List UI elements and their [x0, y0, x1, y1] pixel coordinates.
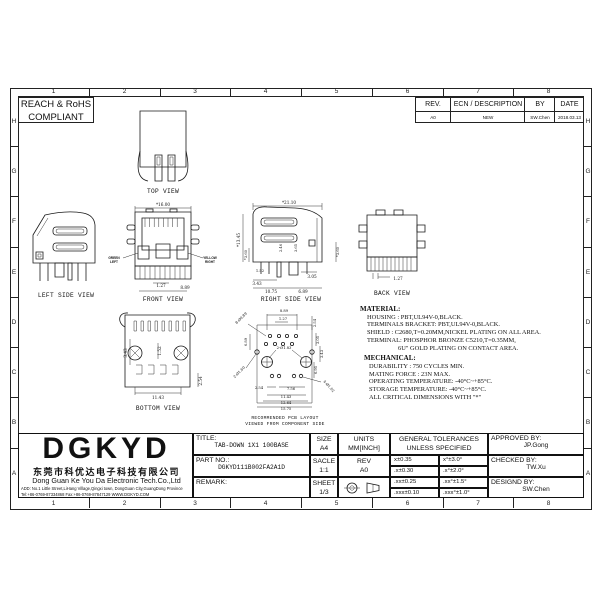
company-address: ADD: No.1 Little Street,LiHang Village,Q…: [21, 486, 193, 491]
rev-col-header: REV.: [416, 98, 450, 111]
pcb-dim-889: 8.89: [280, 309, 289, 313]
scale-cell: SACLE 1:1: [310, 455, 338, 477]
tolerance-mm-cell: .xx±0.25: [390, 477, 439, 488]
zone-letter-right: D: [584, 297, 592, 347]
notes-block: MATERIAL: HOUSING : PBT,UL94V-0,BLACK. T…: [360, 306, 578, 401]
pcb-dim-254a: 2.54: [313, 318, 317, 327]
compliance-stamp: REACH & RoHS COMPLIANT: [18, 97, 94, 123]
checked-cell: CHECKED BY: TW.Xu: [488, 455, 584, 477]
designed-value: SW.Chen: [489, 486, 583, 493]
rev-label: REV: [357, 457, 371, 466]
right-side-view-drawing: *21.10 *13.45 *3.60 2.46 3.65 *3.60 3.05…: [233, 196, 363, 304]
pcb-dim-1575: 15.75: [281, 407, 292, 411]
back-view-drawing: 1.27 BACK VIEW: [356, 203, 464, 301]
size-cell: SIZE A4: [310, 433, 338, 455]
zone-letter-right: E: [584, 247, 592, 297]
projection-cell: [338, 477, 390, 498]
company-logo: DGKYD: [19, 432, 194, 466]
material-line: SHIELD : C2680,T=0.20MM,NICKEL PLATING O…: [367, 329, 578, 337]
mechanical-line: STORAGE TEMPERATURE: -40°C~+85°C.: [369, 386, 578, 394]
material-title: MATERIAL:: [360, 306, 578, 314]
rsv-dim-width: *21.10: [282, 200, 296, 205]
tolerance-deg-cell: .xxx°±1.0°: [439, 488, 488, 498]
rsv-dim-689: 6.89: [298, 289, 308, 294]
checked-label: CHECKED BY:: [489, 456, 583, 464]
zone-number-bottom: 2: [89, 498, 160, 509]
pcb-dim-343: 3.43: [320, 349, 324, 358]
pcb-dim-1143: 11.43: [281, 395, 292, 399]
zone-letter-left: B: [10, 397, 18, 448]
tolerance-header-cell: GENERAL TOLERANCES UNLESS SPECIFIED: [390, 433, 488, 455]
zone-number-bottom: 3: [160, 498, 230, 509]
title-block: DGKYD 东莞市科优达电子科技有限公司 Dong Guan Ke You Da…: [18, 433, 584, 498]
bottom-dim-1143: 11.43: [152, 395, 164, 400]
zone-number-top: 3: [160, 87, 230, 96]
part-no-label: PART NO.:: [194, 456, 309, 464]
size-label: SIZE: [316, 435, 331, 444]
tolerance-deg-cell: .x°±2.0°: [439, 466, 488, 477]
rsv-dim-tail-right: *3.60: [336, 246, 340, 257]
zone-letter-left: C: [10, 347, 18, 397]
company-contact: Tel:+86-0769-87334868 Fax:+86-0769-87847…: [21, 492, 193, 497]
front-dim-span: 8.89: [180, 285, 190, 290]
zone-number-top: 7: [443, 87, 513, 96]
pcb-dim-127: 1.27: [279, 317, 288, 321]
zone-letter-left: G: [10, 146, 18, 196]
approved-cell: APPROVED BY: JP.Gong: [488, 433, 584, 455]
company-cell: DGKYD 东莞市科优达电子科技有限公司 Dong Guan Ke You Da…: [18, 433, 193, 498]
front-view-drawing: *16.00 GREEN LEFT YELLOW RIGHT 1.27 8.89…: [103, 198, 221, 304]
sheet-value: 1/3: [319, 488, 328, 497]
zone-letter-left: F: [10, 196, 18, 247]
pcb-layout-label1: RECOMMENDED PCB LAYOUT: [251, 415, 318, 421]
by-col-header: BY: [524, 98, 555, 111]
units-label: UNITS: [354, 435, 374, 444]
rsv-dim-305: 3.05: [307, 274, 317, 279]
units-value: MM[INCH]: [348, 444, 380, 453]
bottom-view-drawing: 3.43 1.52 11.43 2.54 BOTTOM VIEW: [112, 303, 237, 417]
mechanical-title: MECHANICAL:: [364, 355, 578, 363]
pcb-dim-756: 7.56: [287, 387, 296, 391]
part-no-value: DGKYD111B002FA2A1D: [194, 464, 309, 471]
left-side-view-drawing: LEFT SIDE VIEW: [25, 205, 110, 300]
mechanical-line: DURABILITY : 750 CYCLES MIN.: [369, 363, 578, 371]
zone-number-top: 6: [372, 87, 443, 96]
bottom-view-label: BOTTOM VIEW: [136, 405, 180, 412]
pcb-dim-holes2b: 2-Ø1.60: [232, 364, 246, 378]
tolerance-deg-cell: x°±3.0°: [439, 455, 488, 466]
back-dim-pitch: 1.27: [393, 276, 403, 281]
pcb-layout-label2: VIEWED FROM COMPONENT SIDE: [245, 421, 324, 427]
rev-value: A0: [416, 111, 450, 123]
pcb-dim-689: 6.89: [244, 337, 248, 346]
zone-number-top: 4: [230, 87, 301, 96]
rsv-dim-tail-left: *3.60: [244, 249, 248, 260]
mechanical-line: MATING FORCE : 23N MAX.: [369, 371, 578, 379]
zone-letter-right: B: [584, 397, 592, 448]
tolerance-mm-cell: x±0.35: [390, 455, 439, 466]
rsv-dim-mid1: 2.46: [279, 243, 283, 252]
sheet-cell: SHEET 1/3: [310, 477, 338, 498]
date-value: 2018.03.13: [554, 111, 584, 123]
zone-number-bottom: 7: [443, 498, 513, 509]
compliance-line2: COMPLIANT: [19, 112, 93, 125]
pcb-layout-drawing: 8.89 1.27 2.54 8-Ø0.89 6.89 2-Ø1.83 3.05…: [228, 300, 365, 432]
projection-symbol-icon: [343, 480, 385, 496]
rsv-dim-height: *13.45: [236, 233, 241, 247]
mechanical-line: OPERATING TEMPERATURE: -40°C~+85°C.: [369, 378, 578, 386]
tolerance-header-line2: UNLESS SPECIFIED: [407, 444, 472, 453]
front-dim-pitch: 1.27: [156, 283, 166, 288]
material-line: 6U" GOLD PLATING ON CONTACT AREA.: [398, 345, 578, 353]
bottom-dim-152: 1.52: [157, 346, 162, 356]
zone-number-bottom: 8: [513, 498, 584, 509]
zone-number-top: 1: [18, 87, 89, 96]
led-green: [138, 246, 149, 259]
front-view-label: FRONT VIEW: [143, 296, 183, 303]
by-value: SW.Chen: [524, 111, 555, 123]
title-cell: TITLE: TAB-DOWN 1X1 100BASE: [193, 433, 310, 455]
pcb-dim-305: 3.05: [316, 335, 320, 344]
approved-value: JP.Gong: [489, 442, 583, 449]
tolerance-deg-cell: .xx°±1.5°: [439, 477, 488, 488]
tolerance-mm-cell: .xxx±0.10: [390, 488, 439, 498]
designed-label: DESIGND BY:: [489, 478, 583, 486]
top-view-drawing: TOP VIEW: [128, 103, 198, 195]
date-col-header: DATE: [554, 98, 584, 111]
pcb-dim-holes2a: 2-Ø1.83: [277, 345, 292, 350]
rsv-dim-152: 1.52: [256, 269, 264, 273]
compliance-line1: REACH & RoHS: [19, 99, 93, 112]
title-label: TITLE:: [194, 434, 309, 442]
top-view-label: TOP VIEW: [147, 188, 179, 195]
zone-number-top: 8: [513, 87, 584, 96]
rsv-dim-1075: 10.75: [265, 289, 277, 294]
zone-letter-right: F: [584, 196, 592, 247]
back-view-label: BACK VIEW: [374, 290, 410, 297]
material-line: TERMINAL: PHOSPHOR BRONZE C5210,T=0.35MM…: [367, 337, 578, 345]
zone-letter-left: E: [10, 247, 18, 297]
mechanical-line: ALL CRITICAL DIMENSIONS WITH "*": [369, 394, 578, 402]
part-no-cell: PART NO.: DGKYD111B002FA2A1D: [193, 455, 310, 477]
zone-number-bottom: 1: [18, 498, 89, 509]
rsv-dim-mid2: 3.65: [294, 243, 298, 252]
pcb-dim-holes4: 4-Ø1.02: [322, 379, 336, 393]
zone-number-top: 5: [301, 87, 372, 96]
rev-value: A0: [360, 466, 368, 475]
bottom-dim-343: 3.43: [123, 348, 128, 358]
front-led-left-label2: LEFT: [110, 260, 118, 264]
size-value: A4: [320, 444, 328, 453]
scale-value: 1:1: [319, 466, 328, 475]
pcb-dim-1264: 12.64: [281, 401, 292, 405]
zone-letter-left: H: [10, 96, 18, 146]
zone-number-bottom: 6: [372, 498, 443, 509]
approved-label: APPROVED BY:: [489, 434, 583, 442]
zone-letter-left: A: [10, 448, 18, 498]
zone-number-bottom: 5: [301, 498, 372, 509]
rev-cell: REV A0: [338, 455, 390, 477]
pcb-dim-254b: 2.54: [255, 386, 264, 390]
front-dim-width: *16.00: [156, 202, 170, 207]
title-value: TAB-DOWN 1X1 100BASE: [194, 442, 309, 449]
zone-number-top: 2: [89, 87, 160, 96]
tolerance-mm-cell: .x±0.30: [390, 466, 439, 477]
pcb-dim-holes8: 8-Ø0.89: [234, 310, 248, 324]
ecn-value: NEW: [450, 111, 525, 123]
sheet-label: SHEET: [313, 479, 336, 488]
zone-letter-left: D: [10, 297, 18, 347]
zone-letter-right: A: [584, 448, 592, 498]
led-yellow: [177, 246, 188, 259]
company-name-en: Dong Guan Ke You Da Electronic Tech.Co.,…: [19, 476, 194, 485]
units-cell: UNITS MM[INCH]: [338, 433, 390, 455]
designed-cell: DESIGND BY: SW.Chen: [488, 477, 584, 498]
material-line: TERMINALS BRACKET: PBT,UL94V-0,BLACK.: [367, 321, 578, 329]
left-side-view-label: LEFT SIDE VIEW: [38, 292, 94, 299]
zone-number-bottom: 4: [230, 498, 301, 509]
rsv-dim-343: 3.43: [252, 281, 262, 286]
zone-letter-right: C: [584, 347, 592, 397]
zone-letter-right: H: [584, 96, 592, 146]
checked-value: TW.Xu: [489, 464, 583, 471]
material-line: HOUSING : PBT,UL94V-0,BLACK.: [367, 314, 578, 322]
zone-letter-right: G: [584, 146, 592, 196]
pcb-dim-695: 6.95: [314, 365, 318, 374]
ecn-col-header: ECN / DESCRIPTION: [450, 98, 525, 111]
bottom-dim-254: 2.54: [198, 376, 203, 386]
front-led-right-label2: RIGHT: [205, 260, 215, 264]
tolerance-header-line1: GENERAL TOLERANCES: [399, 435, 479, 444]
scale-label: SACLE: [313, 457, 335, 466]
remark-cell: REMARK:: [193, 477, 310, 498]
revision-table: REV. ECN / DESCRIPTION BY DATE A0 NEW SW…: [415, 97, 584, 123]
remark-label: REMARK:: [194, 478, 309, 486]
